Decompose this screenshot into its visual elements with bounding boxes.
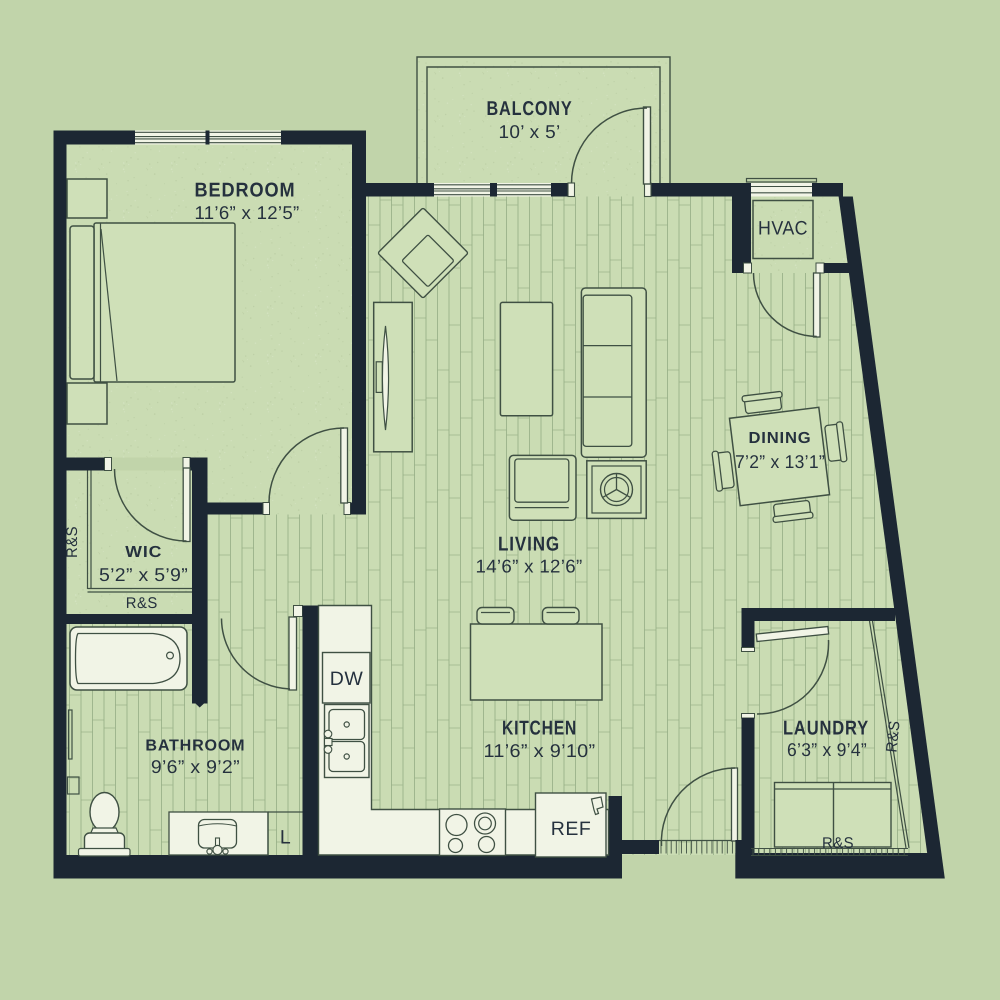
svg-text:10’ x 5’: 10’ x 5’ bbox=[498, 121, 560, 142]
svg-text:L: L bbox=[280, 826, 291, 848]
svg-text:DINING: DINING bbox=[748, 430, 811, 447]
svg-text:DW: DW bbox=[330, 668, 364, 690]
svg-text:R&S: R&S bbox=[126, 595, 158, 612]
svg-text:R&S: R&S bbox=[822, 835, 854, 852]
svg-text:R&S: R&S bbox=[64, 526, 81, 558]
svg-text:11’6” x 12’5”: 11’6” x 12’5” bbox=[194, 202, 299, 223]
svg-text:6’3” x 9’4”: 6’3” x 9’4” bbox=[787, 739, 867, 760]
svg-text:REF: REF bbox=[551, 818, 592, 840]
svg-text:5’2” x 5’9”: 5’2” x 5’9” bbox=[99, 564, 188, 585]
svg-text:11’6” x 9’10”: 11’6” x 9’10” bbox=[483, 740, 595, 761]
svg-text:BALCONY: BALCONY bbox=[486, 98, 572, 120]
svg-text:LAUNDRY: LAUNDRY bbox=[783, 717, 869, 739]
svg-text:7’2” x 13’1”: 7’2” x 13’1” bbox=[735, 451, 825, 472]
svg-text:9’6” x 9’2”: 9’6” x 9’2” bbox=[151, 756, 240, 777]
svg-text:R&S: R&S bbox=[883, 720, 903, 754]
svg-text:KITCHEN: KITCHEN bbox=[502, 717, 577, 739]
svg-text:BEDROOM: BEDROOM bbox=[194, 179, 295, 201]
svg-text:LIVING: LIVING bbox=[498, 533, 560, 555]
svg-text:BATHROOM: BATHROOM bbox=[145, 737, 245, 754]
svg-text:WIC: WIC bbox=[125, 544, 162, 561]
svg-text:HVAC: HVAC bbox=[758, 217, 808, 239]
svg-text:14’6” x 12’6”: 14’6” x 12’6” bbox=[475, 555, 582, 576]
